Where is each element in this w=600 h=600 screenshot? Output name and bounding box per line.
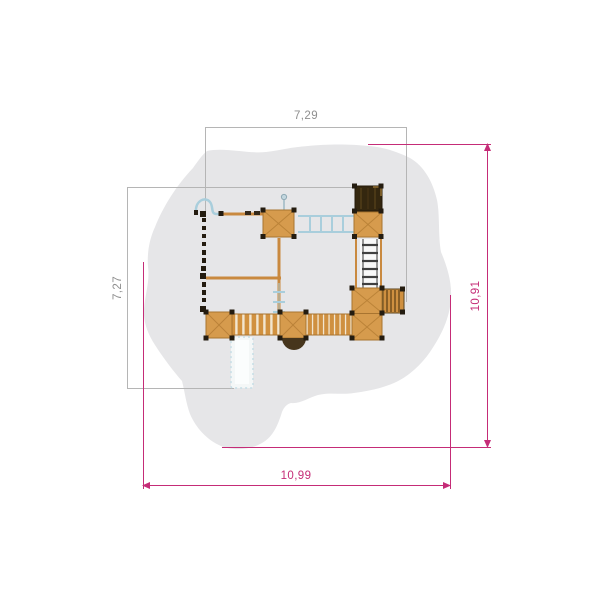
left-platform bbox=[206, 312, 232, 338]
safety-zone-height-label: 10,91 bbox=[470, 281, 482, 312]
tower-platform bbox=[354, 212, 382, 237]
snake-pole-anchor bbox=[194, 210, 198, 215]
plan-drawing: 7,29 7,27 10,91 10,99 bbox=[0, 0, 600, 600]
center-bottom-platform bbox=[280, 312, 306, 338]
safety-zone bbox=[144, 145, 451, 450]
plan-scene bbox=[0, 0, 600, 600]
structure-height-label: 7,27 bbox=[112, 276, 124, 300]
wobble-bridge bbox=[232, 314, 280, 335]
upper-platform bbox=[352, 288, 382, 340]
center-platform bbox=[263, 210, 294, 237]
tower-roof bbox=[355, 186, 382, 211]
access-steps-icon bbox=[383, 289, 404, 313]
slide bbox=[231, 337, 253, 388]
safety-zone-width-label: 10,99 bbox=[281, 470, 312, 482]
plank-bridge bbox=[306, 314, 353, 335]
structure-width-label: 7,29 bbox=[294, 110, 318, 122]
metal-ladder-icon bbox=[360, 239, 380, 288]
